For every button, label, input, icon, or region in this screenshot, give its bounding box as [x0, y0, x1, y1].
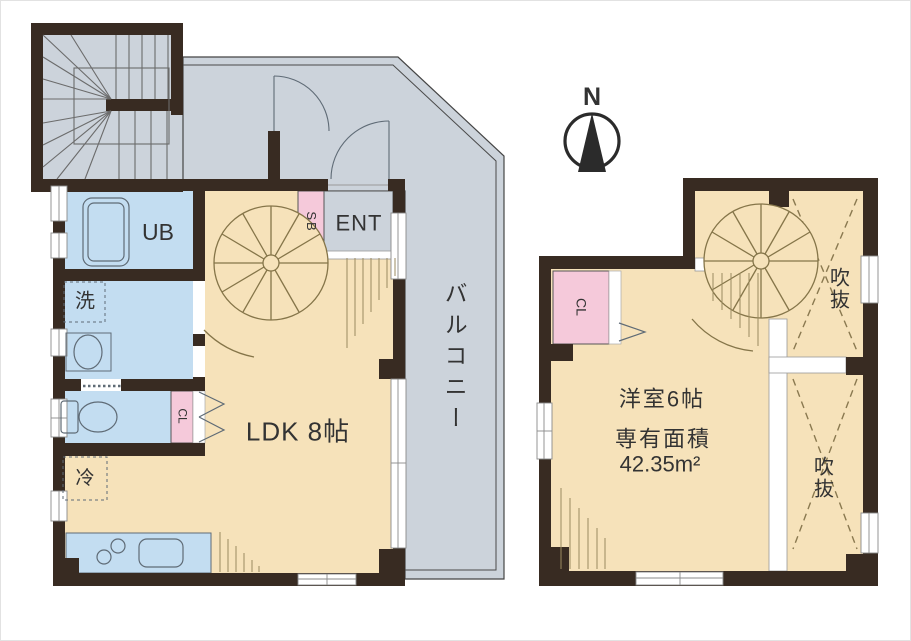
unit-bath-label: UB — [142, 220, 174, 244]
north-label: N — [583, 84, 601, 110]
void-edge-horizontal — [769, 357, 846, 373]
floorplan-image: N UB 洗 冷 SB ENT CL LDK 8帖 バルコニー 洋室6帖 専有面… — [0, 0, 911, 641]
laundry-label: 洗 — [75, 292, 95, 313]
void-upper-label: 吹抜 — [827, 267, 848, 311]
entrance-step — [324, 251, 393, 259]
entrance-label: ENT — [336, 211, 383, 234]
north-compass — [565, 113, 619, 172]
area-value-label: 42.35m² — [620, 452, 701, 475]
closet-1f-label: CL — [176, 408, 189, 423]
refrigerator-label: 冷 — [75, 469, 94, 489]
void-lower-label: 吹抜 — [811, 456, 832, 500]
shoe-box-label: SB — [304, 211, 318, 232]
balcony-label: バルコニー — [442, 282, 466, 437]
ldk-label: LDK 8帖 — [246, 418, 350, 445]
bedroom-label: 洋室6帖 — [619, 387, 705, 410]
closet-2f-label: CL — [574, 298, 589, 316]
closet-2f-door-strip — [609, 271, 621, 344]
area-caption-label: 専有面積 — [615, 427, 711, 450]
